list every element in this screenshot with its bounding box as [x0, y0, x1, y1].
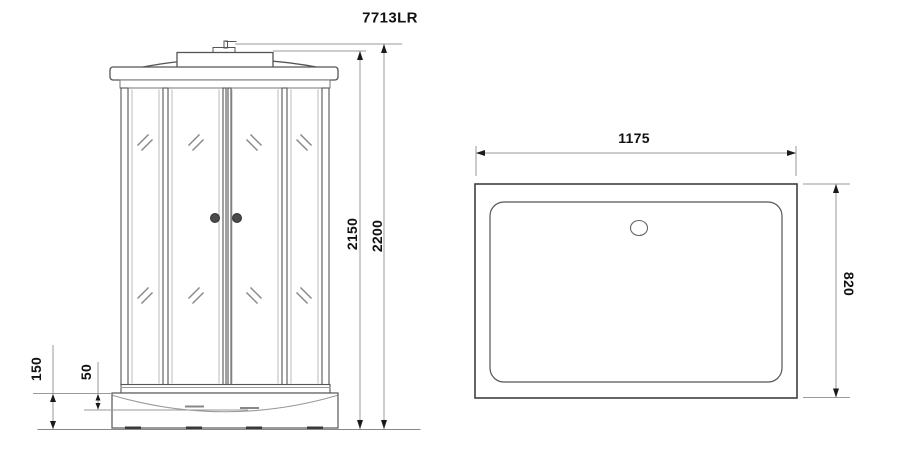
dim-label-50: 50	[78, 364, 94, 380]
dim-label-820: 820	[841, 272, 857, 296]
roof-pipe-fitting	[213, 41, 236, 53]
tray-outer-edge	[475, 184, 797, 398]
cornice-substrip	[120, 80, 330, 88]
roof-vent-box	[177, 53, 273, 68]
dim-label-2150: 2150	[344, 218, 360, 250]
technical-drawing-page: 7713LR 150 50 2150 2200 1175 820	[0, 0, 900, 464]
drawing-canvas	[0, 0, 900, 464]
dim-label-150: 150	[28, 357, 44, 381]
model-number-label: 7713LR	[362, 10, 418, 27]
shower-tray-top-view	[475, 184, 797, 398]
frame-posts	[121, 88, 329, 385]
bottom-rail	[121, 385, 330, 394]
top-cornice	[110, 67, 338, 80]
shower-cabin-front-view	[38, 41, 420, 430]
dim-label-1175: 1175	[618, 130, 650, 146]
shower-tray-base	[112, 393, 338, 430]
dim-label-2200: 2200	[369, 220, 385, 252]
